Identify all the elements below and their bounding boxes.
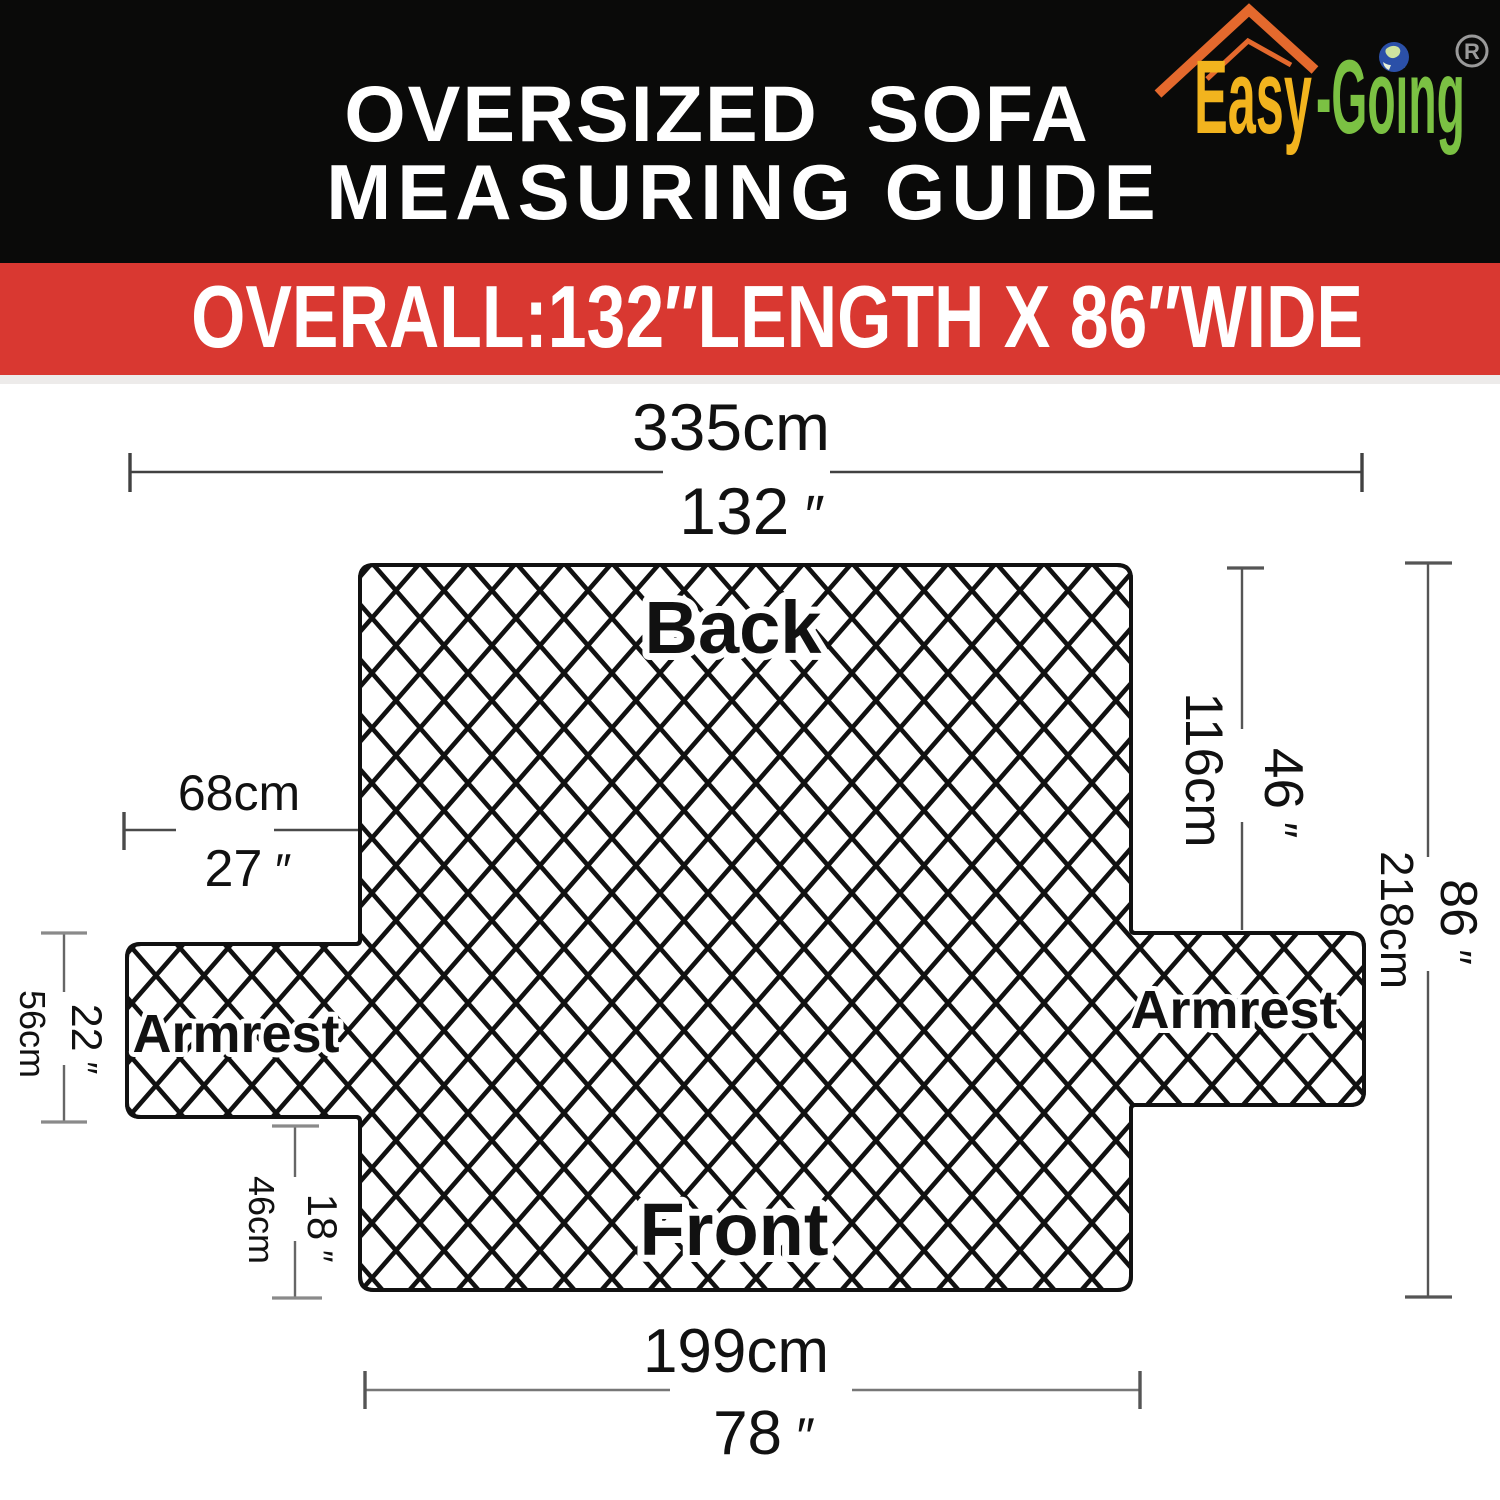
svg-text:R: R [1464,39,1480,64]
svg-text:86 ″: 86 ″ [1429,879,1487,965]
svg-text:18 ″: 18 ″ [299,1194,346,1263]
svg-text:46cm: 46cm [241,1176,282,1264]
svg-text:132 ″: 132 ″ [679,474,825,548]
svg-text:OVERSIZED SOFA: OVERSIZED SOFA [344,69,1090,158]
svg-text:218cm: 218cm [1371,851,1423,989]
svg-text:OVERALL:132″LENGTH X 86″WIDE: OVERALL:132″LENGTH X 86″WIDE [191,267,1363,366]
svg-text:335cm: 335cm [632,390,830,464]
svg-text:22 ″: 22 ″ [62,1004,110,1075]
svg-text:Armrest: Armrest [132,1004,339,1064]
svg-text:116cm: 116cm [1174,692,1233,847]
svg-text:56cm: 56cm [12,990,53,1078]
svg-text:199cm: 199cm [643,1317,829,1386]
svg-text:Back: Back [645,586,823,669]
svg-text:Front: Front [639,1188,828,1271]
svg-text:MEASURING GUIDE: MEASURING GUIDE [326,148,1161,236]
svg-text:27 ″: 27 ″ [205,840,292,898]
svg-text:46 ″: 46 ″ [1253,748,1315,838]
svg-text:78 ″: 78 ″ [713,1399,815,1468]
svg-text:Easy: Easy [1194,39,1312,156]
svg-text:68cm: 68cm [178,765,300,821]
svg-text:Armrest: Armrest [1130,980,1337,1040]
